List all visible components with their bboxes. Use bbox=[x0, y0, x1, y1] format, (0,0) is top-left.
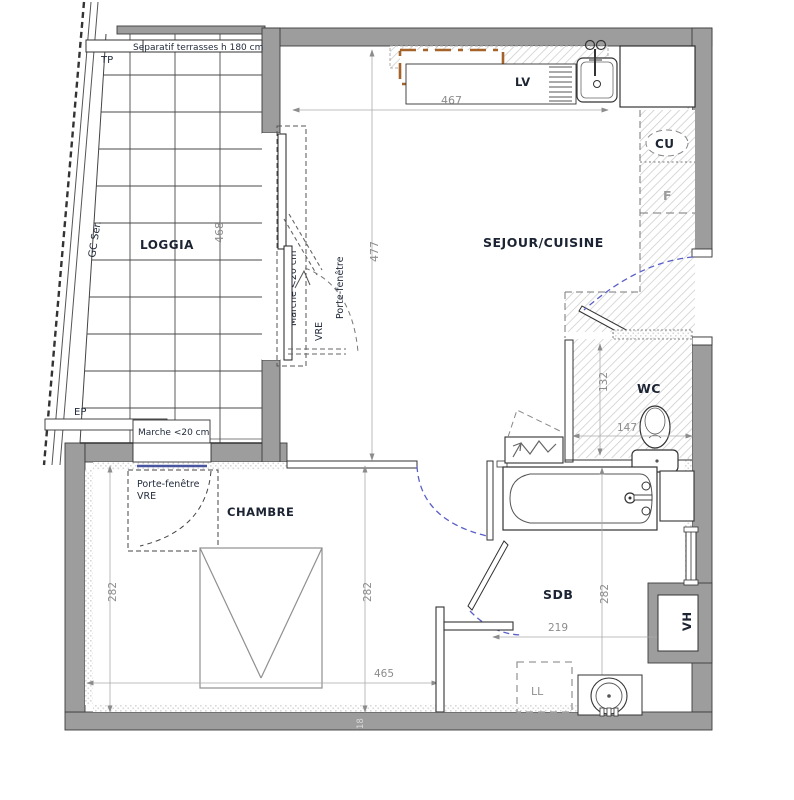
dim-282-right: 282 bbox=[599, 584, 611, 604]
loggia-label: LOGGIA bbox=[140, 238, 194, 252]
hall-nook-partition bbox=[444, 622, 513, 630]
pf-chambre-sill bbox=[133, 443, 211, 462]
separator-label: Separatif terrasses h 180 cm bbox=[133, 43, 263, 53]
wc-floor bbox=[573, 339, 692, 458]
wc-label: WC bbox=[637, 381, 661, 396]
chambre-north-wall-a bbox=[85, 443, 133, 462]
dim-18: 18 bbox=[356, 718, 366, 729]
vanity-unit bbox=[660, 471, 694, 521]
dim-465: 465 bbox=[374, 668, 394, 680]
dim-468: 468 bbox=[213, 222, 226, 243]
floor-plan-page: Separatif terrasses h 180 cm TP GC Ser. … bbox=[0, 0, 794, 800]
sdb-west-partition bbox=[487, 461, 493, 540]
water-heater bbox=[578, 675, 642, 716]
bed bbox=[200, 548, 322, 688]
dim-477: 477 bbox=[368, 241, 381, 262]
chambre-label: CHAMBRE bbox=[227, 505, 294, 519]
dishwasher-box bbox=[406, 64, 576, 104]
dim-282-mid: 282 bbox=[362, 582, 374, 602]
lv-label: LV bbox=[515, 75, 531, 89]
wc-west-partition bbox=[565, 340, 573, 462]
bathtub bbox=[503, 467, 657, 530]
fridge-label: F bbox=[663, 188, 672, 203]
vh-label: VH bbox=[680, 611, 694, 631]
marche-step-label: Marche <20 cm bbox=[138, 428, 209, 438]
pf-sejour-type: VRE bbox=[314, 322, 325, 341]
wc-room: WC 132 147 bbox=[565, 330, 692, 472]
loggia-east-wall-upper bbox=[262, 28, 280, 133]
floor-plan: Separatif terrasses h 180 cm TP GC Ser. … bbox=[0, 0, 794, 800]
chambre-north-thin-wall bbox=[287, 461, 417, 468]
pf-chambre-type: VRE bbox=[137, 491, 156, 502]
wc-north-partition bbox=[613, 330, 692, 339]
loggia-top-rail-wall bbox=[117, 26, 265, 34]
ll-label: LL bbox=[531, 685, 544, 698]
loggia-east-wall-lower bbox=[262, 360, 280, 462]
sdb-label: SDB bbox=[543, 587, 573, 602]
sdb-window bbox=[684, 527, 698, 585]
sliding-panel-1 bbox=[278, 134, 286, 249]
north-wall bbox=[263, 28, 712, 46]
dim-282-left: 282 bbox=[107, 582, 119, 602]
ep-label: EP bbox=[74, 407, 86, 418]
dim-467: 467 bbox=[441, 94, 462, 107]
pf-sejour-label: Porte-fenêtre bbox=[335, 256, 346, 319]
chambre-sdb-partition bbox=[436, 607, 444, 712]
sliding-panel-2 bbox=[284, 246, 292, 360]
sejour-label: SEJOUR/CUISINE bbox=[483, 235, 604, 250]
tp-label: TP bbox=[100, 55, 113, 66]
dim-132: 132 bbox=[598, 372, 610, 392]
pf-chambre-label: Porte-fenêtre bbox=[137, 479, 200, 490]
cu-label: CU bbox=[655, 137, 675, 151]
dim-219: 219 bbox=[548, 622, 568, 634]
corner-counter bbox=[620, 46, 695, 107]
dim-147: 147 bbox=[617, 422, 637, 434]
west-wall bbox=[65, 443, 85, 712]
